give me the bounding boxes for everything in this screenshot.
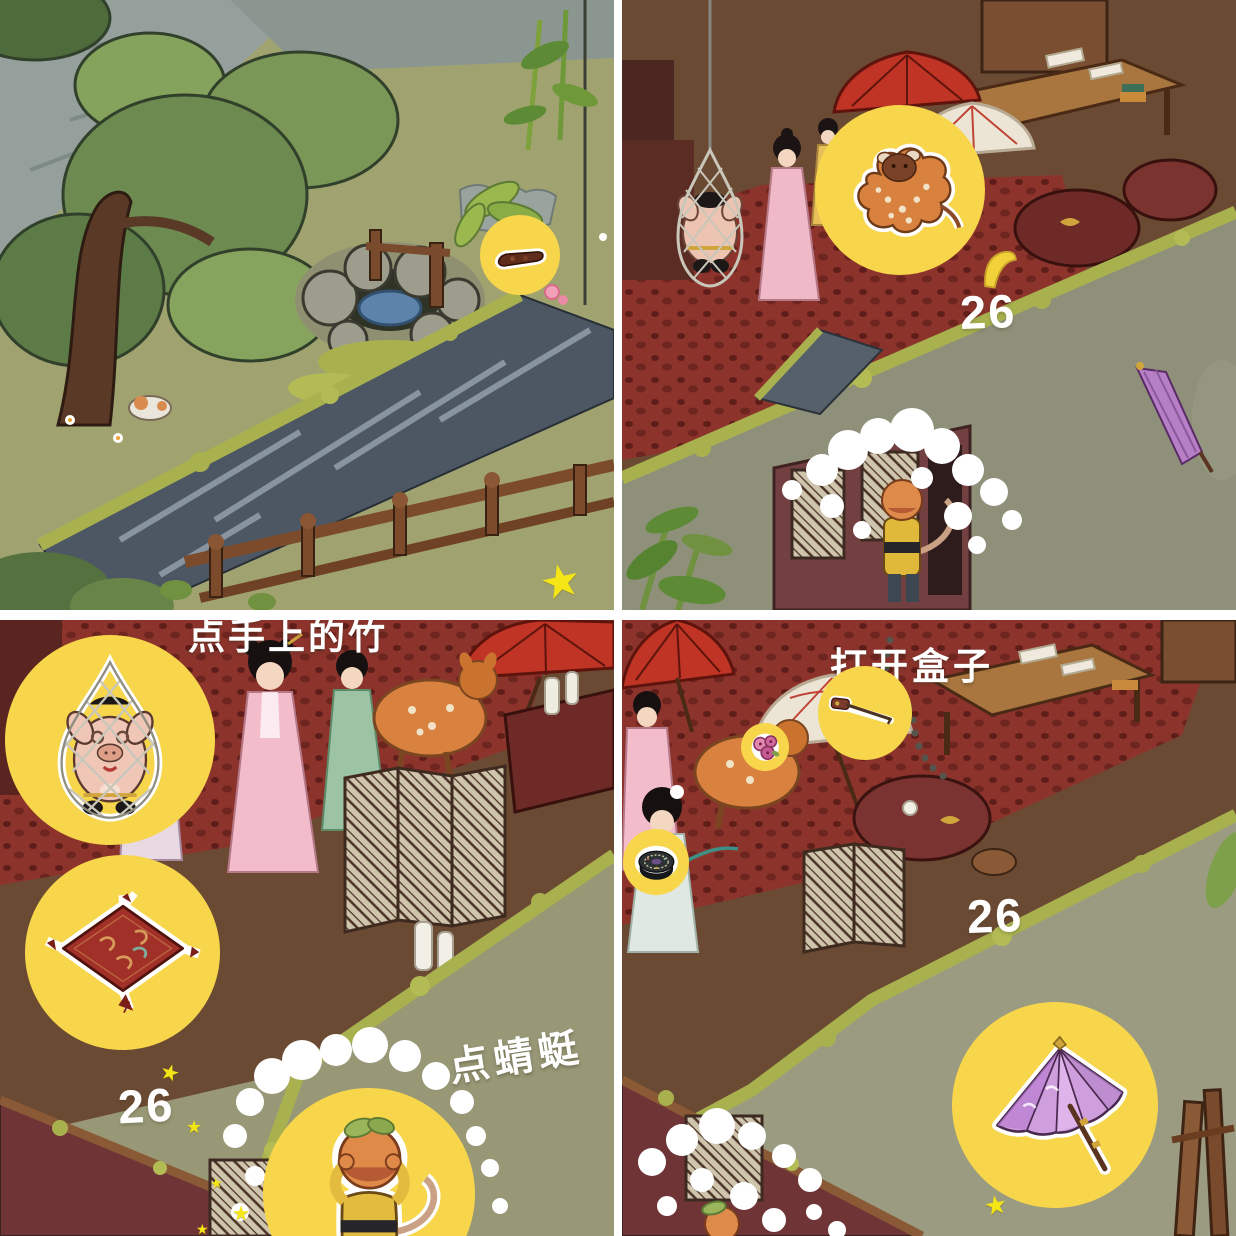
key-hint[interactable] bbox=[818, 666, 912, 760]
cushion-hint[interactable] bbox=[25, 855, 220, 1050]
quadrant-bottom-left: 点手上的竹 bbox=[0, 620, 614, 1236]
flower-hint[interactable] bbox=[741, 723, 789, 771]
monkey-hint[interactable] bbox=[263, 1088, 475, 1236]
parasol-hint[interactable] bbox=[952, 1002, 1158, 1208]
cushion-icon bbox=[45, 875, 201, 1031]
stick-hint[interactable] bbox=[480, 215, 560, 295]
teahouse-scene bbox=[622, 0, 1236, 610]
star-icon: ★ bbox=[982, 1190, 1009, 1220]
quadrant-bottom-right: 打开盒子 bbox=[622, 620, 1236, 1236]
star-icon: ★ bbox=[232, 1204, 250, 1224]
parasol-icon bbox=[973, 1023, 1138, 1188]
quadrant-top-left: ★ bbox=[0, 0, 614, 610]
remaining-counter: 26 bbox=[966, 891, 1024, 940]
screenshot-grid: ★ bbox=[0, 0, 1236, 1236]
folding-screen bbox=[345, 766, 505, 932]
garden-scene bbox=[0, 0, 614, 610]
pig-in-net-icon bbox=[26, 656, 194, 824]
quadrant-top-right: 26 bbox=[622, 0, 1236, 610]
remaining-counter: 26 bbox=[117, 1081, 176, 1131]
star-icon: ★ bbox=[186, 1118, 202, 1136]
pig-in-net-hint[interactable] bbox=[5, 635, 215, 845]
star-icon: ★ bbox=[196, 1222, 209, 1236]
round-box-icon bbox=[630, 836, 683, 889]
folding-screen bbox=[804, 844, 904, 952]
cat bbox=[129, 396, 171, 420]
key-icon bbox=[827, 675, 902, 750]
deer-pelt-icon bbox=[832, 122, 968, 258]
star-icon: ★ bbox=[209, 1175, 224, 1191]
instruction-partial: 点手上的竹 bbox=[188, 620, 388, 660]
round-box-hint[interactable] bbox=[623, 829, 689, 895]
stick-icon bbox=[488, 223, 552, 287]
deer-pelt-hint[interactable] bbox=[815, 105, 985, 275]
flower-icon bbox=[746, 728, 784, 766]
remaining-counter: 26 bbox=[959, 287, 1017, 336]
monkey-icon bbox=[284, 1109, 454, 1236]
